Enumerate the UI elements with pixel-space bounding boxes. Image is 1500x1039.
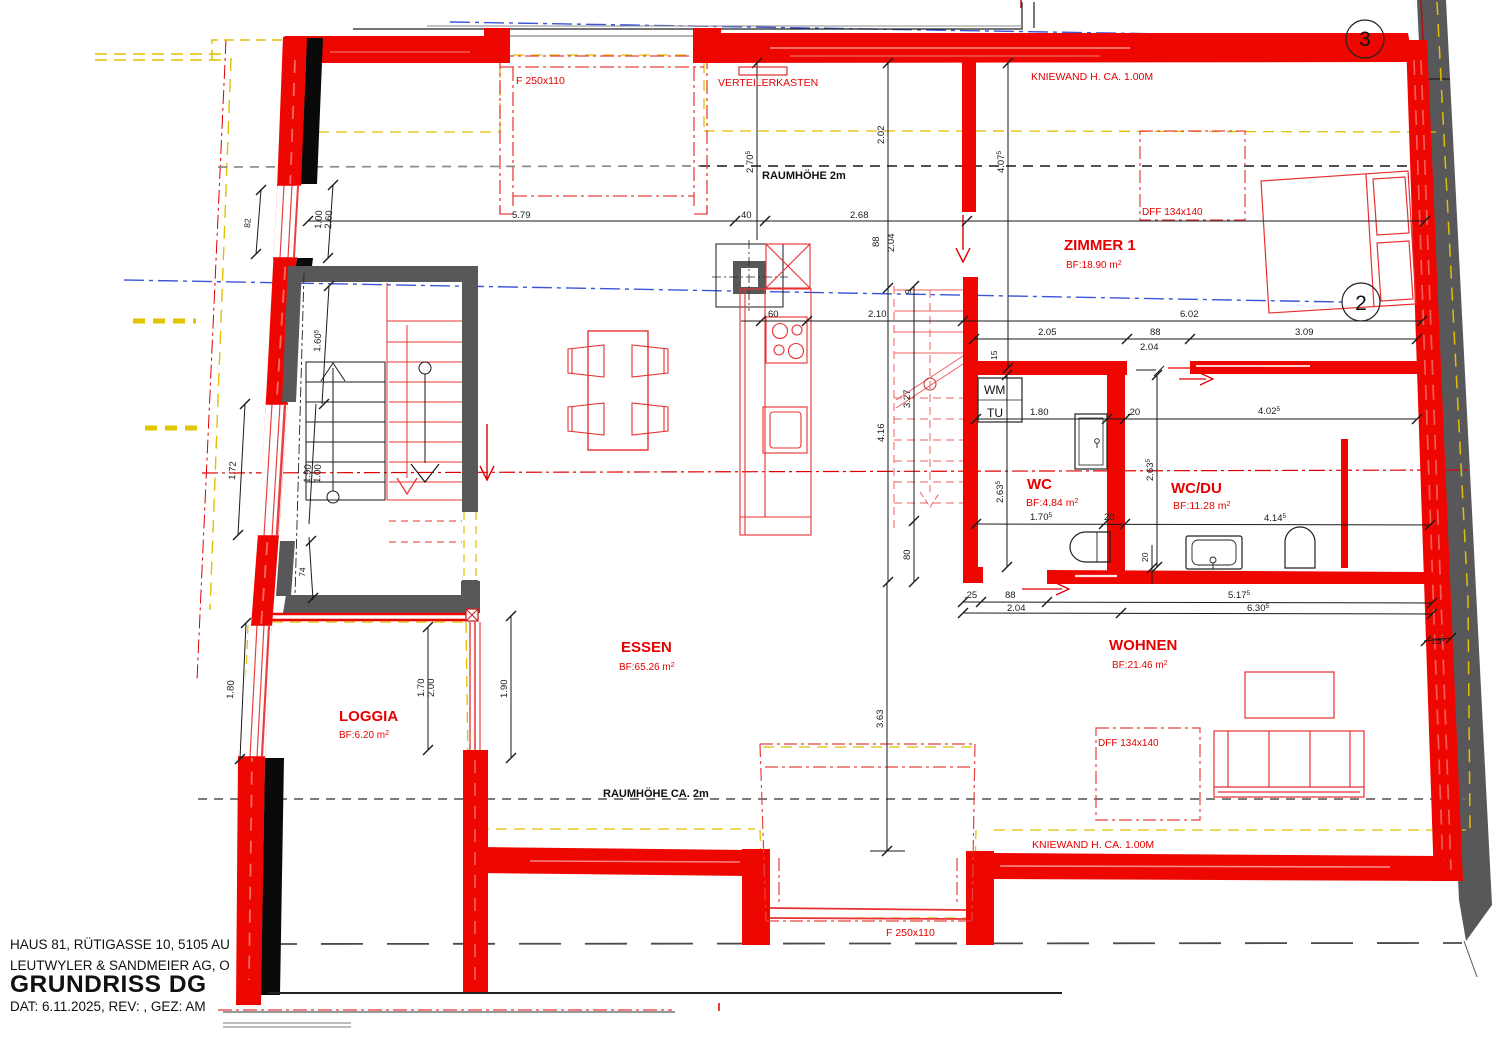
svg-text:80: 80 bbox=[902, 549, 913, 560]
svg-text:74: 74 bbox=[297, 567, 307, 577]
svg-text:WC: WC bbox=[1027, 476, 1052, 493]
svg-text:2.68: 2.68 bbox=[850, 210, 869, 221]
svg-text:1.80: 1.80 bbox=[1030, 407, 1049, 418]
svg-text:2.04: 2.04 bbox=[1140, 342, 1159, 353]
svg-text:DFF 134x140: DFF 134x140 bbox=[1098, 738, 1159, 749]
svg-text:KNIEWAND H. CA. 1.00M: KNIEWAND H. CA. 1.00M bbox=[1032, 839, 1154, 851]
svg-text:5.79: 5.79 bbox=[512, 210, 531, 221]
svg-text:.20: .20 bbox=[1127, 407, 1140, 418]
svg-text:WC/DU: WC/DU bbox=[1171, 480, 1222, 497]
svg-text:WM: WM bbox=[984, 383, 1005, 397]
svg-text:BF:11.28 m2: BF:11.28 m2 bbox=[1173, 500, 1231, 512]
svg-text:3: 3 bbox=[1359, 28, 1371, 51]
svg-text:15: 15 bbox=[989, 350, 999, 360]
svg-text:F 250x110: F 250x110 bbox=[516, 75, 565, 87]
svg-text:1.72: 1.72 bbox=[227, 461, 239, 480]
svg-text:2.05: 2.05 bbox=[1038, 327, 1057, 338]
svg-text:BF:4.84 m2: BF:4.84 m2 bbox=[1026, 497, 1078, 509]
svg-text:DFF 134x140: DFF 134x140 bbox=[1142, 207, 1203, 218]
svg-text:RAUMHÖHE CA. 2m: RAUMHÖHE CA. 2m bbox=[603, 787, 709, 800]
svg-text:3.63: 3.63 bbox=[875, 710, 886, 729]
svg-text:F 250x110: F 250x110 bbox=[886, 927, 935, 939]
svg-text:2.10: 2.10 bbox=[868, 309, 887, 320]
svg-text:BF:18.90 m2: BF:18.90 m2 bbox=[1066, 260, 1122, 271]
svg-text:2.00: 2.00 bbox=[426, 679, 437, 698]
svg-text:BF:21.46 m2: BF:21.46 m2 bbox=[1112, 660, 1168, 671]
svg-text:BF:65.26 m2: BF:65.26 m2 bbox=[619, 662, 675, 673]
svg-text:40: 40 bbox=[741, 210, 752, 221]
svg-text:1.80: 1.80 bbox=[225, 680, 237, 699]
svg-text:ZIMMER 1: ZIMMER 1 bbox=[1064, 237, 1136, 254]
svg-text:BF:6.20 m2: BF:6.20 m2 bbox=[339, 730, 389, 741]
svg-text:VERTEILERKASTEN: VERTEILERKASTEN bbox=[718, 77, 818, 89]
svg-text:2.04: 2.04 bbox=[886, 234, 897, 253]
svg-text:DAT: 6.11.2025, REV: , GEZ: AM: DAT: 6.11.2025, REV: , GEZ: AM bbox=[10, 999, 206, 1014]
svg-text:TU: TU bbox=[987, 406, 1003, 420]
svg-text:4.16: 4.16 bbox=[876, 424, 887, 443]
svg-text:1.90: 1.90 bbox=[499, 680, 510, 699]
svg-text:1.00: 1.00 bbox=[312, 464, 324, 483]
svg-text:HAUS 81, RÜTIGASSE 10, 5105 AU: HAUS 81, RÜTIGASSE 10, 5105 AU bbox=[10, 937, 230, 952]
svg-text:88: 88 bbox=[1005, 590, 1016, 601]
svg-text:LOGGIA: LOGGIA bbox=[339, 708, 398, 725]
svg-text:GRUNDRISS DG: GRUNDRISS DG bbox=[10, 971, 207, 998]
svg-text:ESSEN: ESSEN bbox=[621, 639, 672, 656]
svg-text:WOHNEN: WOHNEN bbox=[1109, 637, 1177, 654]
svg-text:RAUMHÖHE 2m: RAUMHÖHE 2m bbox=[762, 169, 846, 182]
svg-text:82: 82 bbox=[242, 218, 253, 228]
svg-text:20: 20 bbox=[1104, 512, 1115, 523]
svg-text:KNIEWAND H. CA. 1.00M: KNIEWAND H. CA. 1.00M bbox=[1031, 71, 1153, 83]
svg-text:6.02: 6.02 bbox=[1180, 309, 1199, 320]
svg-text:3.09: 3.09 bbox=[1295, 327, 1314, 338]
svg-text:.25: .25 bbox=[964, 590, 977, 601]
svg-text:88: 88 bbox=[1150, 327, 1161, 338]
svg-text:60: 60 bbox=[768, 309, 779, 320]
svg-text:88: 88 bbox=[871, 236, 882, 247]
svg-text:9: 9 bbox=[903, 289, 913, 294]
svg-text:2.04: 2.04 bbox=[1007, 603, 1026, 614]
svg-text:2.60: 2.60 bbox=[323, 210, 335, 229]
svg-text:3.27: 3.27 bbox=[902, 390, 913, 409]
svg-text:20: 20 bbox=[1140, 552, 1150, 562]
svg-text:2.02: 2.02 bbox=[876, 126, 887, 145]
svg-text:2: 2 bbox=[1355, 292, 1367, 315]
